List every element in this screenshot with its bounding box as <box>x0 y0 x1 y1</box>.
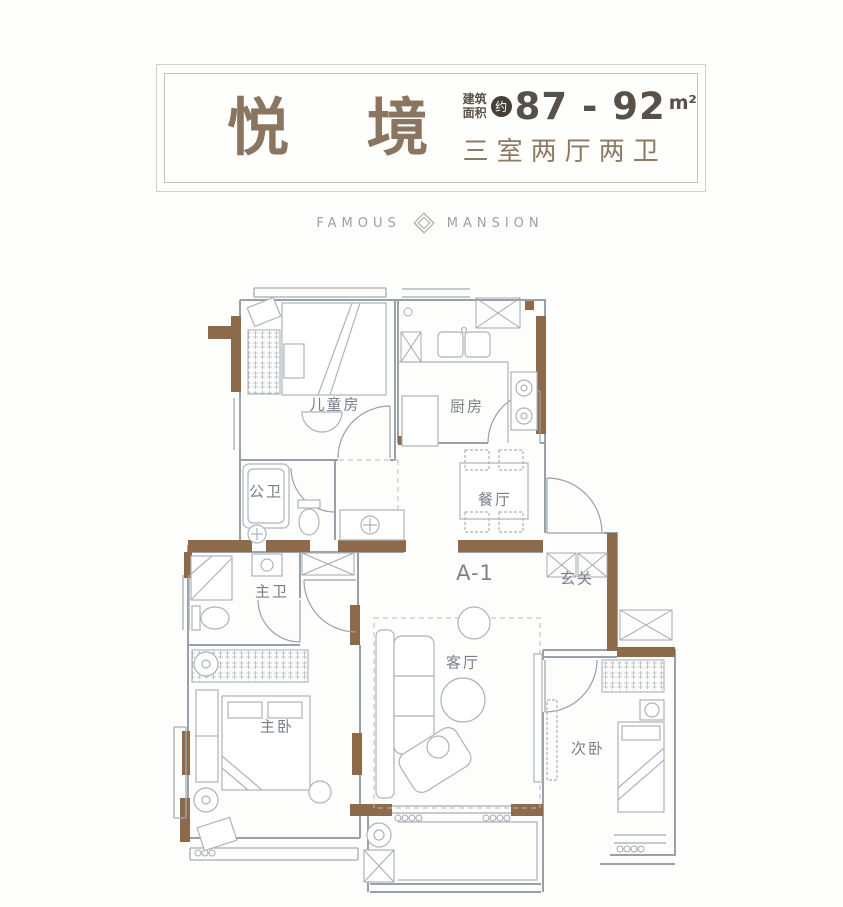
room-label-master-bedroom: 主卧 <box>260 716 294 737</box>
public-bath-fixtures <box>243 464 320 543</box>
room-label-dining-room: 餐厅 <box>478 489 512 510</box>
page: 悦 境 建筑 面积 约 87 - 92 m² 三室两厅两卫 FAMOUS <box>0 0 843 907</box>
room-label-living-room: 客厅 <box>446 652 480 673</box>
room-label-kitchen: 厨房 <box>450 396 484 417</box>
room-label-master-bath: 主卫 <box>255 581 289 602</box>
second-bedroom-furniture <box>547 700 664 812</box>
kitchen-furniture <box>398 328 537 447</box>
vanity <box>340 510 404 540</box>
unit-code-label: A-1 <box>456 561 494 585</box>
balcony-fixtures <box>364 822 537 882</box>
coil-symbols <box>195 815 644 856</box>
room-label-public-bath: 公卫 <box>249 481 283 502</box>
room-label-second-bedroom: 次卧 <box>571 738 605 759</box>
room-label-children-room: 儿童房 <box>309 394 360 415</box>
floor-plan <box>0 0 843 907</box>
living-room-furniture <box>376 607 542 798</box>
room-label-entrance: 玄关 <box>560 568 594 589</box>
